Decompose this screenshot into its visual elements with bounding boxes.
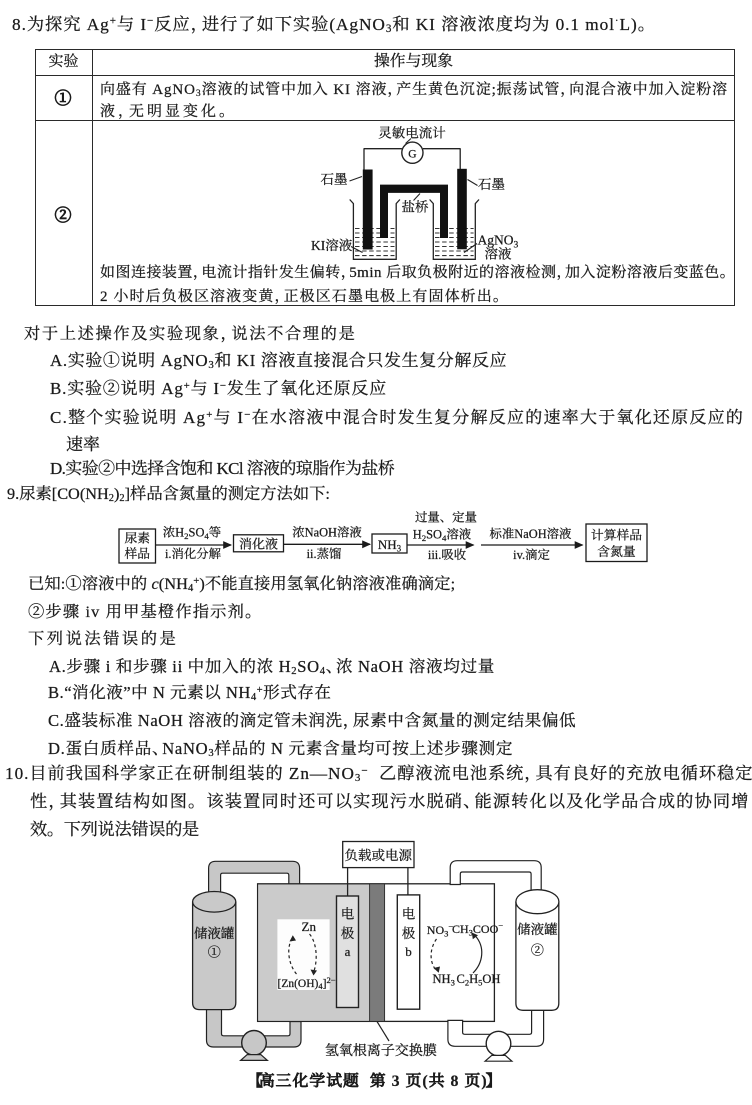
svg-text:iii.吸收: iii.吸收 <box>428 548 467 562</box>
svg-text:标准NaOH溶液: 标准NaOH溶液 <box>490 527 573 541</box>
svg-text:②: ② <box>531 943 544 958</box>
svg-text:含氮量: 含氮量 <box>597 545 636 559</box>
svg-text:尿素: 尿素 <box>125 532 151 546</box>
svg-text:i.消化分解: i.消化分解 <box>165 547 222 561</box>
svg-text:氢氧根离子交换膜: 氢氧根离子交换膜 <box>325 1043 437 1059</box>
svg-text:石墨: 石墨 <box>478 177 505 192</box>
svg-text:ii.蒸馏: ii.蒸馏 <box>307 547 342 561</box>
svg-text:样品: 样品 <box>125 547 151 561</box>
svg-text:KI溶液: KI溶液 <box>311 238 353 253</box>
svg-text:灵敏电流计: 灵敏电流计 <box>378 126 446 141</box>
svg-text:消化液: 消化液 <box>239 536 278 551</box>
svg-text:储液罐: 储液罐 <box>517 922 558 937</box>
svg-text:石墨: 石墨 <box>321 172 348 187</box>
svg-text:CH3COO−: CH3COO− <box>452 921 503 938</box>
svg-text:极: 极 <box>341 926 355 941</box>
svg-text:浓NaOH溶液: 浓NaOH溶液 <box>292 526 362 540</box>
svg-text:计算样品: 计算样品 <box>591 529 642 543</box>
svg-text:负载或电源: 负载或电源 <box>345 848 413 863</box>
svg-text:b: b <box>405 944 412 959</box>
svg-text:H2SO4溶液: H2SO4溶液 <box>413 528 472 544</box>
svg-text:电: 电 <box>341 907 355 922</box>
svg-text:极: 极 <box>402 926 416 941</box>
svg-text:iv.滴定: iv.滴定 <box>513 548 550 562</box>
svg-text:a: a <box>345 944 351 959</box>
svg-text:Zn: Zn <box>302 919 317 934</box>
svg-text:G: G <box>408 148 416 160</box>
svg-text:浓H2SO4等: 浓H2SO4等 <box>163 526 221 542</box>
svg-text:过量、定量: 过量、定量 <box>415 511 477 525</box>
svg-text:①: ① <box>208 945 221 960</box>
svg-text:电: 电 <box>402 907 416 922</box>
svg-text:储液罐: 储液罐 <box>194 926 235 941</box>
svg-text:盐桥: 盐桥 <box>402 200 429 215</box>
svg-text:溶液: 溶液 <box>485 247 512 262</box>
